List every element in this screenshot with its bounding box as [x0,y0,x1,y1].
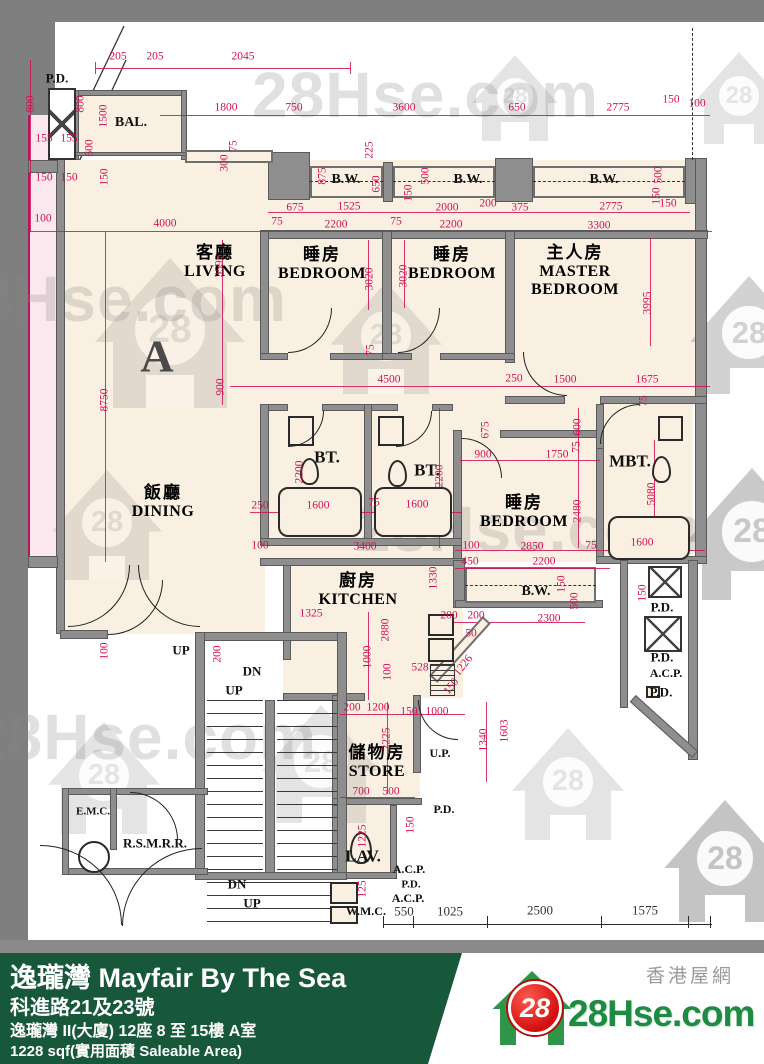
dimension-label: 75 [228,140,240,152]
stair-flight [207,882,337,926]
plan-annotation: UP [225,684,242,697]
dimension-label: 500 [420,167,432,184]
dimension-label: 1600 [406,499,429,511]
dimension-line [160,115,710,116]
plan-annotation: R.S.M.R.R. [123,837,187,850]
dimension-label: 1325 [300,608,323,620]
plan-annotation: P.D. [651,651,674,664]
dimension-label: 700 [352,786,369,798]
wall-segment [195,632,347,641]
dimension-label: 2045 [232,51,255,63]
plan-annotation: BAL. [115,116,147,130]
dimension-label: 1600 [631,537,654,549]
plan-annotation: P.D. [650,686,673,699]
room-label-line: DINING [132,503,195,521]
estate-title: 逸瓏灣 Mayfair By The Sea [10,956,346,995]
wall-segment [322,404,398,411]
estate-area: 1228 sqf(實用面積 Saleable Area) [10,1040,242,1061]
dimension-label: 900 [474,449,491,461]
dimension-label: 150 [99,168,111,185]
wall-segment [432,404,453,411]
watermark-house-icon: 28 [512,728,624,840]
room-label: 主人房MASTERBEDROOM [531,238,619,299]
dimension-label: 450 [461,556,478,568]
dimension-label: 2200 [325,219,348,231]
dimension-label: 2500 [527,904,553,917]
dimension-label: 3595 [214,255,226,278]
stair-flight [207,700,263,876]
dimension-label: 75 [638,395,650,407]
dimension-label: 650 [371,175,383,192]
dimension-label: 2200 [434,465,446,488]
dimension-label: 100 [382,663,394,680]
dimension-line [268,212,690,213]
pd-shaft [648,566,682,598]
dimension-line [95,62,96,74]
plan-annotation: P.D. [651,601,674,614]
watermark-house-icon: 28 [664,800,764,922]
dimension-label: 1750 [546,449,569,461]
plan-annotation: P.D. [434,803,455,815]
base-dimension-line [710,916,711,928]
room-label-line: MASTER [531,263,619,281]
dimension-label: 225 [364,141,376,158]
bathtub [278,487,362,537]
plan-annotation: DN [228,878,247,891]
room-label: 飯廳DINING [132,478,195,521]
dimension-label: 3995 [642,292,654,315]
unit-letter: A [140,330,173,383]
room-label: 睡房BEDROOM [278,240,366,283]
door-swing-arc [122,848,202,926]
dimension-label: 1675 [636,374,659,386]
wall-segment [28,556,58,568]
dimension-label: 375 [511,202,528,214]
dimension-label: 75 [585,540,597,552]
wmc-box [330,882,358,904]
footer-green-banner: 逸瓏灣 Mayfair By The Sea 科進路21及23號 逸瓏灣 II(… [0,953,470,1064]
dimension-line [350,62,351,74]
plan-annotation: A.C.P. [650,667,683,679]
dimension-label: 4500 [378,374,401,386]
dimension-label: 2850 [521,541,544,553]
dimension-label: 1575 [632,904,658,917]
boundary-dashed-line [692,28,693,160]
wall-segment [195,632,205,880]
room-label-line: 睡房 [278,240,366,265]
plan-annotation: B.W. [453,173,482,187]
room-label: 廚房KITCHEN [318,566,397,609]
dimension-label: 150 [60,172,77,184]
dimension-label: 800 [75,95,87,112]
plan-annotation: P.D. [401,880,420,891]
dimension-label: 750 [285,102,302,114]
dimension-label: 675 [480,421,492,438]
dimension-label: 125 [357,880,369,897]
dimension-line [455,568,610,569]
dimension-label: 1200 [367,702,390,714]
wall-segment [600,396,707,404]
wall-segment [382,230,392,360]
dimension-label: 1025 [437,905,463,918]
dimension-label: 650 [508,102,525,114]
pd-shaft [48,88,76,160]
dimension-label: 550 [394,905,414,918]
dimension-label: 75 [271,216,283,228]
dimension-label: 600 [572,418,584,435]
room-label-line: KITCHEN [318,591,397,609]
dimension-label: 1603 [499,720,511,743]
room-label-line: 廚房 [318,566,397,591]
wall-segment [260,404,269,546]
dimension-label: 100 [34,213,51,225]
wall-segment [500,430,603,438]
dimension-label: 100 [99,642,111,659]
wall-segment [364,404,372,546]
wall-segment [505,396,565,404]
room-label-line: BEDROOM [408,265,496,283]
base-dimension-line [688,916,689,928]
dimension-label: 3300 [588,220,611,232]
toilet [388,460,407,487]
dimension-label: 1330 [428,567,440,590]
room-label-line: 飯廳 [132,478,195,503]
wall-segment [268,152,310,200]
dimension-line [230,386,710,387]
dimension-label: 500 [382,786,399,798]
dimension-line [30,60,31,232]
logo-wordmark[interactable]: 28Hse.com [568,993,754,1035]
dimension-label: 200 [440,610,457,622]
footer-divider [0,940,764,953]
dimension-label: 1800 [215,102,238,114]
dimension-label: 300 [219,154,231,171]
dimension-label: 2775 [600,201,623,213]
dimension-label: 205 [109,51,126,63]
wall-segment [260,353,288,360]
dimension-label: 1225 [357,825,369,848]
wall-segment [337,632,347,880]
plan-annotation: UP [243,897,260,910]
base-dimension-line [487,916,488,928]
dimension-line [340,797,415,798]
room-label: 儲物房STORE [349,738,406,781]
room-label: 睡房BEDROOM [408,240,496,283]
pd-shaft [644,616,682,652]
dimension-label: 75 [365,344,377,356]
dimension-label: 1000 [426,706,449,718]
wall-segment [505,230,515,363]
dimension-label: 150 [405,816,417,833]
dimension-label: 75 [571,441,583,453]
dimension-label: 2480 [572,500,584,523]
wall-segment [440,353,515,360]
dimension-label: 1500 [98,105,110,128]
room-label-line: STORE [349,763,406,781]
dimension-label: 75 [390,216,402,228]
basin [658,416,683,441]
dimension-label: 250 [505,373,522,385]
estate-address: 科進路21及23號 [10,991,155,1020]
dimension-label: 500 [653,166,665,183]
dimension-line [95,68,350,69]
dimension-label: 528 [411,662,428,674]
dimension-label: 150 [556,575,568,592]
dimension-label: 500 [569,592,581,609]
room-label-line: BEDROOM [278,265,366,283]
dimension-label: 3600 [393,102,416,114]
wall-segment [110,788,117,850]
dimension-label: 900 [215,378,227,395]
dimension-label: 250 [251,500,268,512]
dimension-label: 150 [403,184,415,201]
footer: 逸瓏灣 Mayfair By The Sea 科進路21及23號 逸瓏灣 II(… [0,953,764,1064]
dimension-label: 155 [35,133,52,145]
plan-annotation: B.W. [589,173,618,187]
wall-segment [73,90,187,96]
plan-annotation: BT. [314,449,340,466]
dimension-label: 2200 [533,556,556,568]
room-label-line: BEDROOM [480,513,568,531]
dimension-label: 8750 [99,389,111,412]
wall-segment [283,565,291,660]
dimension-label: 2880 [380,619,392,642]
dimension-label: 1340 [478,729,490,752]
dimension-label: 200 [343,702,360,714]
dimension-label: 1000 [362,646,374,669]
base-dimension-line [601,916,602,928]
dimension-label: 2225 [381,728,393,751]
wall-segment [688,560,698,760]
plan-annotation: E.M.C. [76,807,110,818]
dimension-label: 200 [479,198,496,210]
dimension-label: 50 [465,628,477,640]
dimension-label: 205 [146,51,163,63]
dimension-label: 150 [659,198,676,210]
dimension-label: 150 [662,94,679,106]
toilet [652,456,671,483]
floorplan-page: 28 28 28 28 28 28 28 28 28 28 2828Hse.co… [0,0,764,1064]
dimension-label: 100 [688,98,705,110]
plan-annotation: LAV. [345,848,381,865]
wall-segment [260,230,269,360]
kitchen-sink [428,638,454,662]
dimension-label: 2200 [440,219,463,231]
plan-annotation: MBT. [609,453,651,470]
wall-segment [383,162,393,202]
stair-flight [277,700,337,876]
base-dimension-line [383,924,712,925]
plan-annotation: B.W. [521,585,550,599]
dimension-label: 1600 [307,500,330,512]
estate-building: 逸瓏灣 II(大廈) 12座 8 至 15樓 A室 [10,1017,256,1041]
dimension-label: 600 [84,139,96,156]
frame-left [0,22,28,940]
dimension-label: 100 [251,540,268,552]
dimension-label: 2200 [294,461,306,484]
dimension-label: 5080 [646,483,658,506]
dimension-label: 2300 [538,613,561,625]
plan-annotation: P.D. [46,72,69,85]
dimension-label: 1500 [554,374,577,386]
plan-annotation: DN [243,665,262,678]
room-label-line: BEDROOM [531,281,619,299]
plan-annotation: U.P. [430,747,451,759]
dimension-label: 3020 [398,265,410,288]
wall-segment [382,353,412,360]
plan-annotation: A.C.P. [393,863,426,875]
plan-annotation: B.W. [331,173,360,187]
frame-top [0,0,764,22]
dimension-label: 200 [467,610,484,622]
wall-segment [620,560,628,708]
wall-segment [695,158,707,562]
dimension-label: 200 [212,645,224,662]
plan-annotation: A.C.P. [392,892,425,904]
logo-28-badge: 28 [508,981,562,1035]
room-label-line: 儲物房 [349,738,406,763]
dimension-label: 3020 [364,268,376,291]
wall-segment [265,700,275,878]
dimension-label: 75 [368,497,380,509]
bathtub [374,487,452,537]
dimension-label: 1525 [338,201,361,213]
logo-site-name: 香港屋網 [646,961,734,988]
dimension-label: 875 [317,167,329,184]
room-label: 睡房BEDROOM [480,488,568,531]
plan-annotation: UP [172,644,189,657]
wall-segment [495,158,533,202]
dimension-label: 150 [637,584,649,601]
wall-segment [60,630,108,639]
plan-annotation: W.M.C. [346,905,386,917]
dimension-label: 800 [25,95,37,112]
dimension-label: 2775 [607,102,630,114]
dimension-label: 150 [35,172,52,184]
room-label-line: 睡房 [480,488,568,513]
dimension-label: 675 [286,202,303,214]
dimension-label: 150 [400,706,417,718]
dimension-label: 155 [60,133,77,145]
dimension-label: 100 [462,540,479,552]
dimension-label: 4000 [154,218,177,230]
dimension-label: 2000 [436,202,459,214]
dimension-label: 3400 [354,541,377,553]
door-swing-arc [130,792,178,840]
room-label-line: 主人房 [531,238,619,263]
room-label-line: 睡房 [408,240,496,265]
